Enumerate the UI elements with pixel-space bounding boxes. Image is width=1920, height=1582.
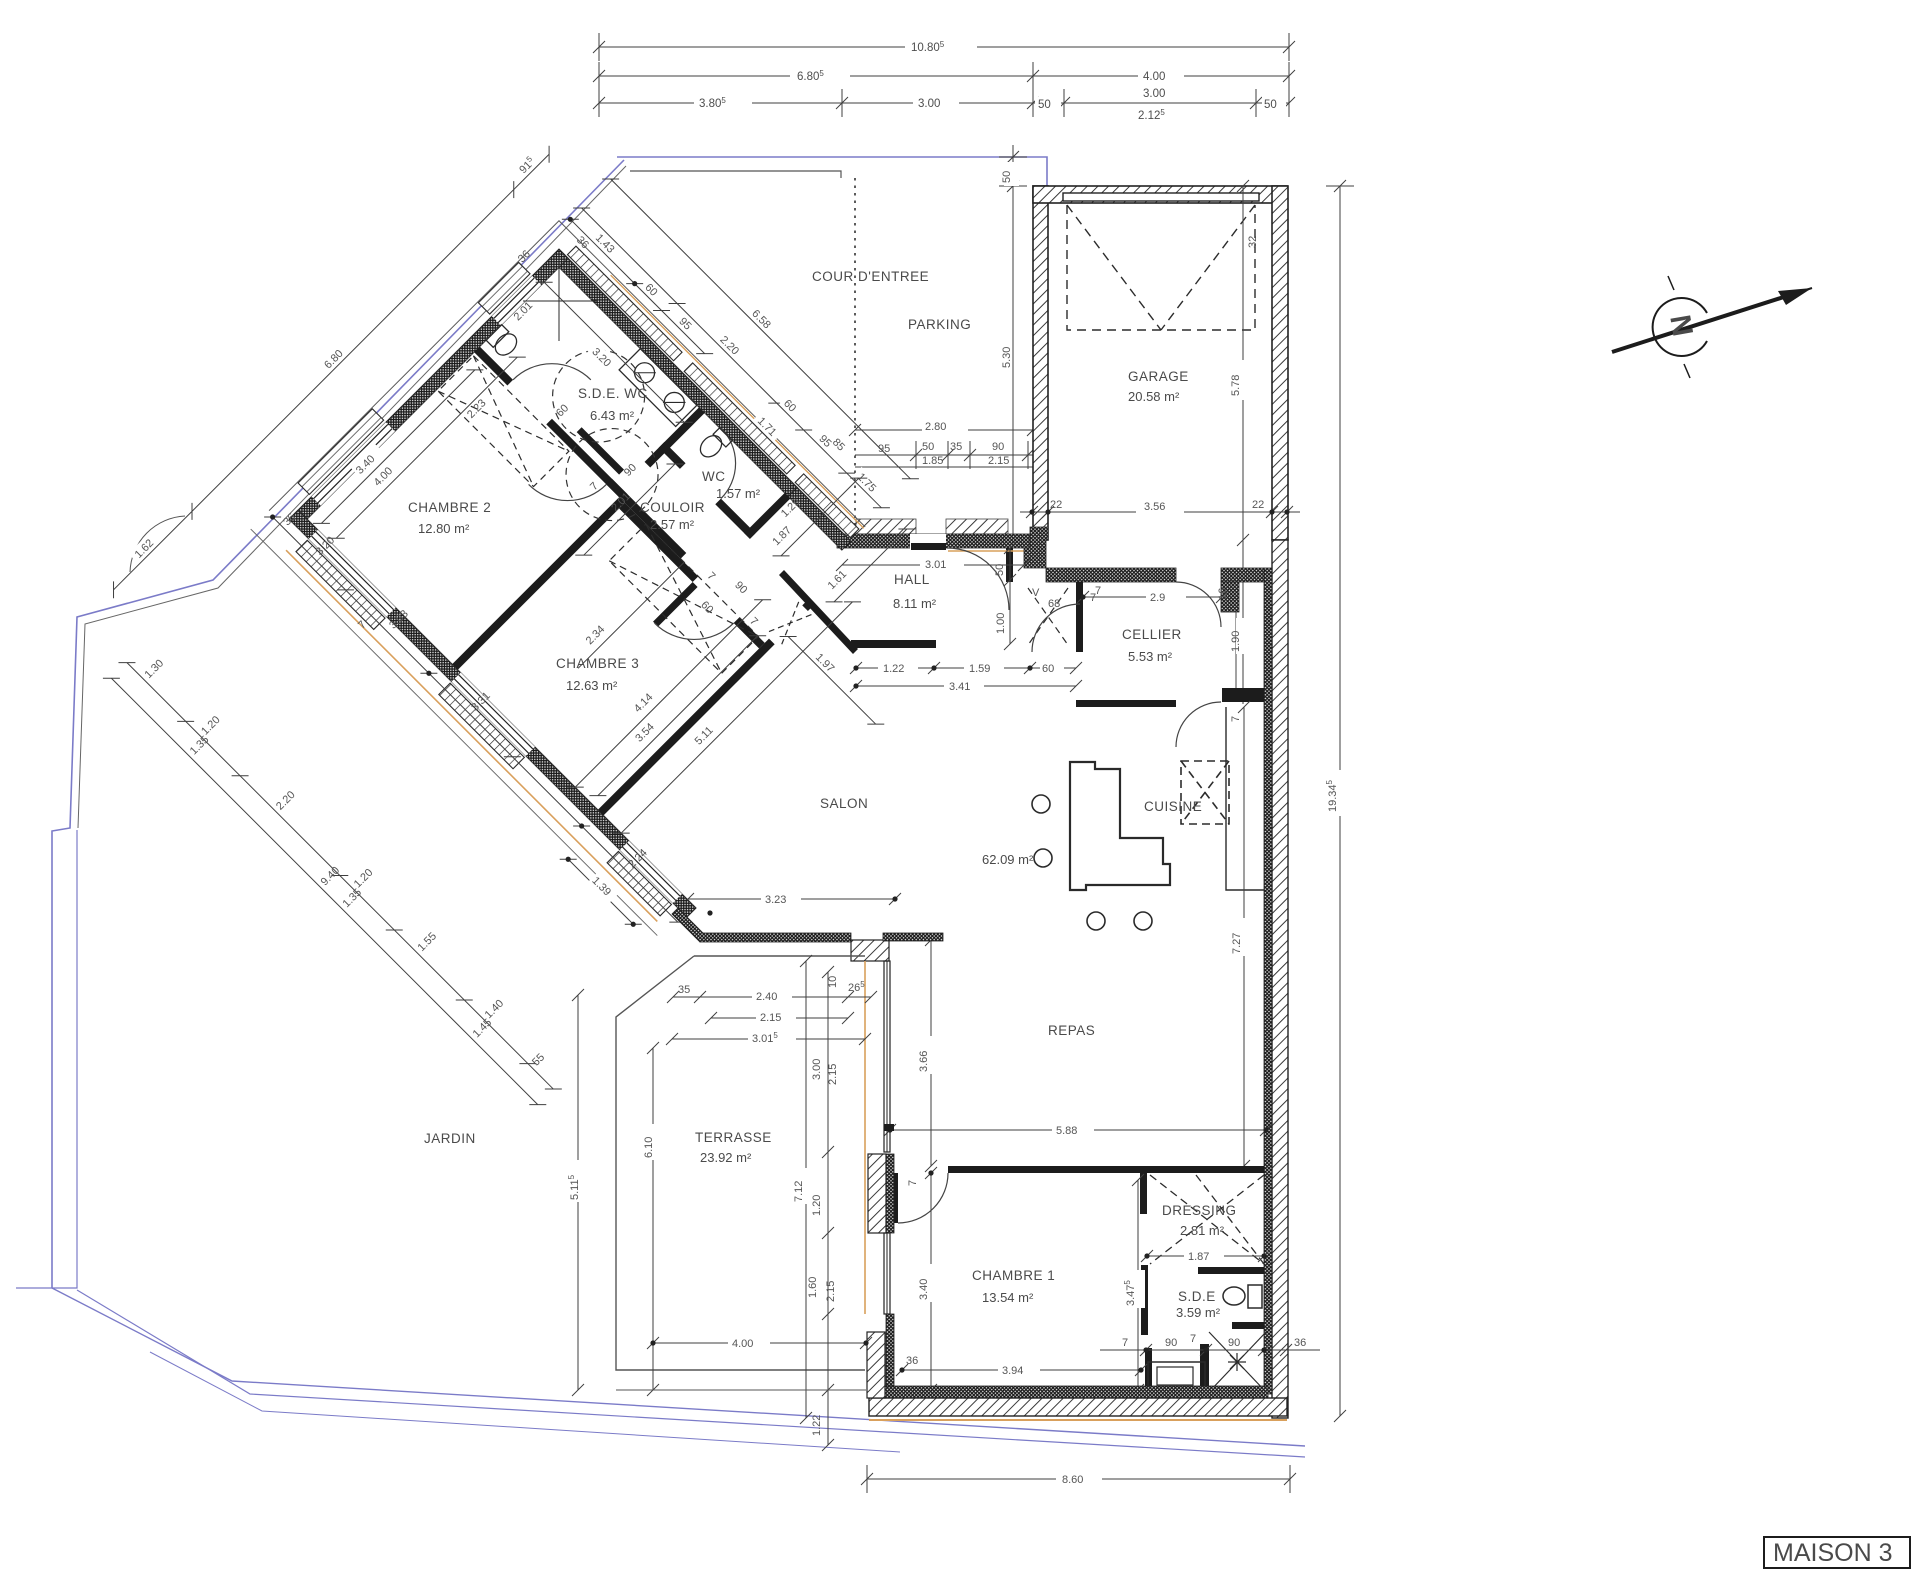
- svg-text:2.57 m²: 2.57 m²: [650, 517, 695, 532]
- svg-text:62.09 m²: 62.09 m²: [982, 852, 1034, 867]
- svg-text:2.15: 2.15: [825, 1281, 837, 1302]
- svg-text:V: V: [1032, 587, 1040, 599]
- svg-text:6.43 m²: 6.43 m²: [590, 408, 635, 423]
- svg-text:36: 36: [1294, 1337, 1306, 1349]
- svg-text:7: 7: [907, 1180, 919, 1186]
- svg-text:5.53 m²: 5.53 m²: [1128, 649, 1173, 664]
- svg-text:SALON: SALON: [820, 796, 868, 811]
- svg-text:2.40: 2.40: [756, 991, 777, 1003]
- svg-text:2.9: 2.9: [1150, 592, 1165, 604]
- svg-text:3.56: 3.56: [1144, 501, 1165, 513]
- svg-text:35: 35: [950, 441, 962, 453]
- svg-text:90: 90: [1228, 1337, 1240, 1349]
- svg-text:4.00: 4.00: [732, 1338, 753, 1350]
- svg-text:90: 90: [1165, 1337, 1177, 1349]
- svg-text:TERRASSE: TERRASSE: [695, 1130, 772, 1145]
- svg-text:GARAGE: GARAGE: [1128, 369, 1189, 384]
- svg-text:7: 7: [1122, 1337, 1128, 1349]
- svg-text:5.88: 5.88: [1056, 1125, 1077, 1137]
- svg-text:4.00: 4.00: [1143, 71, 1165, 83]
- svg-text:60: 60: [1042, 663, 1054, 675]
- svg-text:3.66: 3.66: [918, 1051, 930, 1072]
- svg-text:PARKING: PARKING: [908, 317, 971, 332]
- svg-text:3.23: 3.23: [765, 894, 786, 906]
- svg-text:1.00: 1.00: [995, 613, 1007, 634]
- svg-text:1.22: 1.22: [811, 1415, 823, 1436]
- svg-text:JARDIN: JARDIN: [424, 1131, 476, 1146]
- svg-text:1.85: 1.85: [922, 455, 943, 467]
- svg-text:2.81 m²: 2.81 m²: [1180, 1223, 1225, 1238]
- svg-text:3.41: 3.41: [949, 681, 970, 693]
- svg-text:MAISON 3: MAISON 3: [1773, 1539, 1892, 1567]
- svg-text:16: 16: [1217, 588, 1229, 600]
- svg-text:10: 10: [827, 976, 839, 988]
- svg-text:1.90: 1.90: [1230, 631, 1242, 652]
- svg-text:50: 50: [1264, 99, 1277, 111]
- svg-text:3.94: 3.94: [1002, 1365, 1023, 1377]
- svg-text:WC: WC: [702, 469, 726, 484]
- svg-text:3.59 m²: 3.59 m²: [1176, 1305, 1221, 1320]
- svg-text:2.15: 2.15: [827, 1064, 839, 1085]
- svg-text:10.805: 10.805: [911, 40, 945, 54]
- svg-text:13.54 m²: 13.54 m²: [982, 1290, 1034, 1305]
- svg-text:1.59: 1.59: [969, 663, 990, 675]
- svg-text:5.30: 5.30: [1001, 347, 1013, 368]
- svg-text:COUR D'ENTREE: COUR D'ENTREE: [812, 269, 929, 284]
- svg-text:CHAMBRE 2: CHAMBRE 2: [408, 500, 491, 515]
- svg-text:50: 50: [922, 441, 934, 453]
- svg-text:REPAS: REPAS: [1048, 1023, 1095, 1038]
- svg-text:S.D.E: S.D.E: [1178, 1289, 1216, 1304]
- svg-text:CELLIER: CELLIER: [1122, 627, 1182, 642]
- svg-text:7: 7: [1230, 716, 1242, 722]
- svg-text:HALL: HALL: [894, 572, 930, 587]
- svg-text:68: 68: [1048, 598, 1060, 610]
- svg-text:3.01: 3.01: [925, 559, 946, 571]
- svg-text:DRESSING: DRESSING: [1162, 1203, 1237, 1218]
- svg-text:3.00: 3.00: [918, 98, 940, 110]
- svg-text:22: 22: [1252, 499, 1264, 511]
- svg-text:12.63 m²: 12.63 m²: [566, 678, 618, 693]
- svg-text:2.15: 2.15: [988, 455, 1009, 467]
- svg-text:35: 35: [678, 984, 690, 996]
- svg-text:3.00: 3.00: [811, 1059, 823, 1080]
- svg-text:7.12: 7.12: [793, 1181, 805, 1202]
- svg-text:36: 36: [906, 1355, 918, 1367]
- svg-text:50: 50: [994, 564, 1006, 576]
- svg-text:7: 7: [1095, 585, 1101, 597]
- svg-text:1.22: 1.22: [883, 663, 904, 675]
- svg-text:CUISINE: CUISINE: [1144, 799, 1202, 814]
- svg-text:12.80 m²: 12.80 m²: [418, 521, 470, 536]
- svg-text:6.10: 6.10: [643, 1137, 655, 1158]
- svg-text:3.00: 3.00: [1143, 88, 1165, 100]
- svg-text:23.92 m²: 23.92 m²: [700, 1150, 752, 1165]
- svg-text:1.87: 1.87: [1188, 1251, 1209, 1263]
- svg-text:CHAMBRE 3: CHAMBRE 3: [556, 656, 639, 671]
- svg-text:32: 32: [1247, 236, 1259, 248]
- svg-text:20.58 m²: 20.58 m²: [1128, 389, 1180, 404]
- svg-text:90: 90: [992, 441, 1004, 453]
- svg-text:22: 22: [1050, 499, 1062, 511]
- svg-text:CHAMBRE 1: CHAMBRE 1: [972, 1268, 1055, 1283]
- svg-text:7.27: 7.27: [1231, 933, 1243, 954]
- svg-text:8.11 m²: 8.11 m²: [893, 596, 937, 611]
- svg-text:3.40: 3.40: [918, 1279, 930, 1300]
- svg-text:2.80: 2.80: [925, 421, 946, 433]
- svg-text:1.60: 1.60: [807, 1277, 819, 1298]
- svg-text:50: 50: [1001, 171, 1013, 183]
- svg-text:5.78: 5.78: [1230, 375, 1242, 396]
- svg-text:S.D.E. WC: S.D.E. WC: [578, 386, 648, 401]
- svg-text:1.57 m²: 1.57 m²: [716, 486, 761, 501]
- svg-text:7: 7: [1190, 1333, 1196, 1345]
- svg-text:COULOIR: COULOIR: [640, 500, 705, 515]
- svg-text:50: 50: [1038, 99, 1051, 111]
- svg-text:8.60: 8.60: [1062, 1474, 1083, 1486]
- svg-text:1.20: 1.20: [811, 1195, 823, 1216]
- svg-text:2.15: 2.15: [760, 1012, 781, 1024]
